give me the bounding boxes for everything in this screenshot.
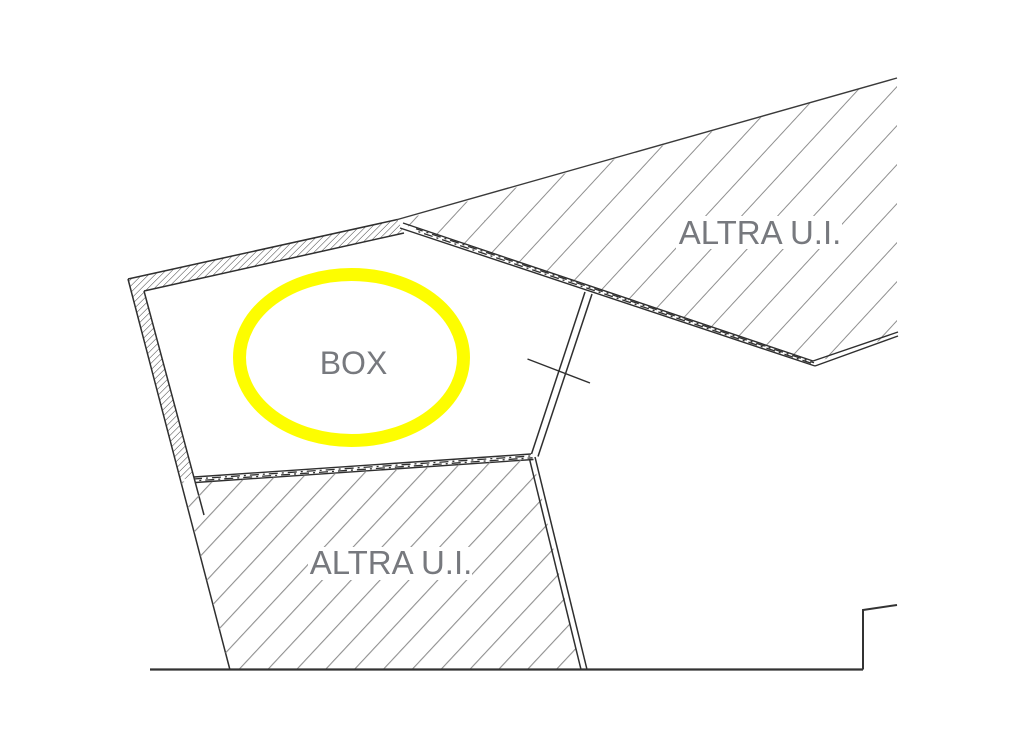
svg-text:ALTRA U.I.: ALTRA U.I. [310, 544, 473, 581]
svg-text:ALTRA U.I.: ALTRA U.I. [679, 214, 842, 251]
svg-text:BOX: BOX [320, 345, 388, 381]
